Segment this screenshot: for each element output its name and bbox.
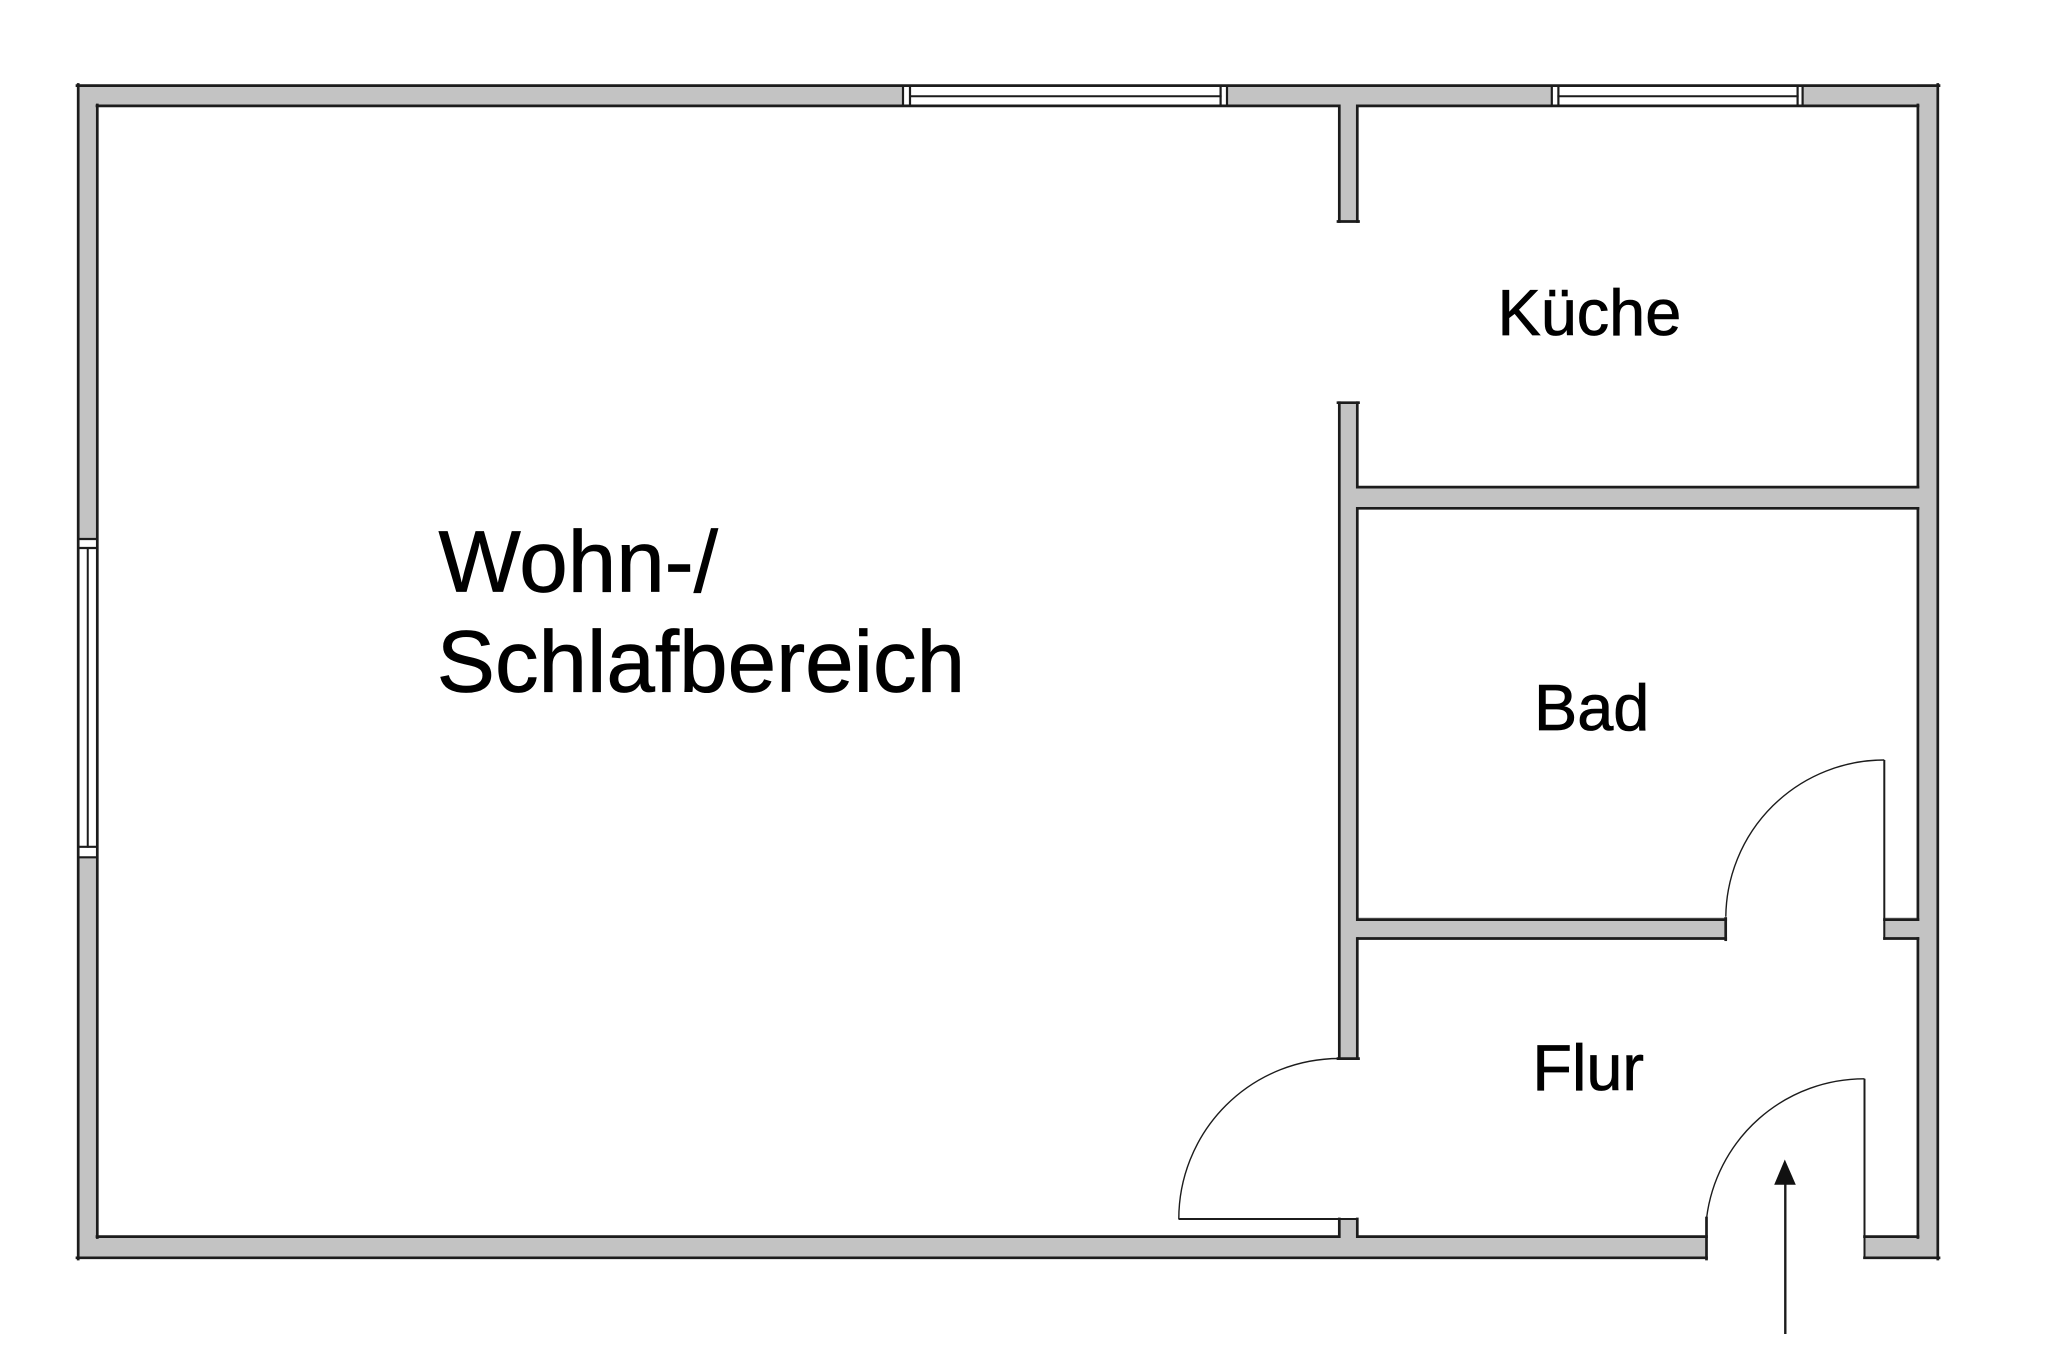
svg-text:Wohn-/: Wohn-/	[439, 514, 719, 611]
svg-text:Küche: Küche	[1498, 276, 1682, 349]
svg-text:Flur: Flur	[1532, 1031, 1644, 1104]
svg-text:Bad: Bad	[1534, 671, 1649, 744]
svg-text:Schlafbereich: Schlafbereich	[437, 614, 965, 711]
